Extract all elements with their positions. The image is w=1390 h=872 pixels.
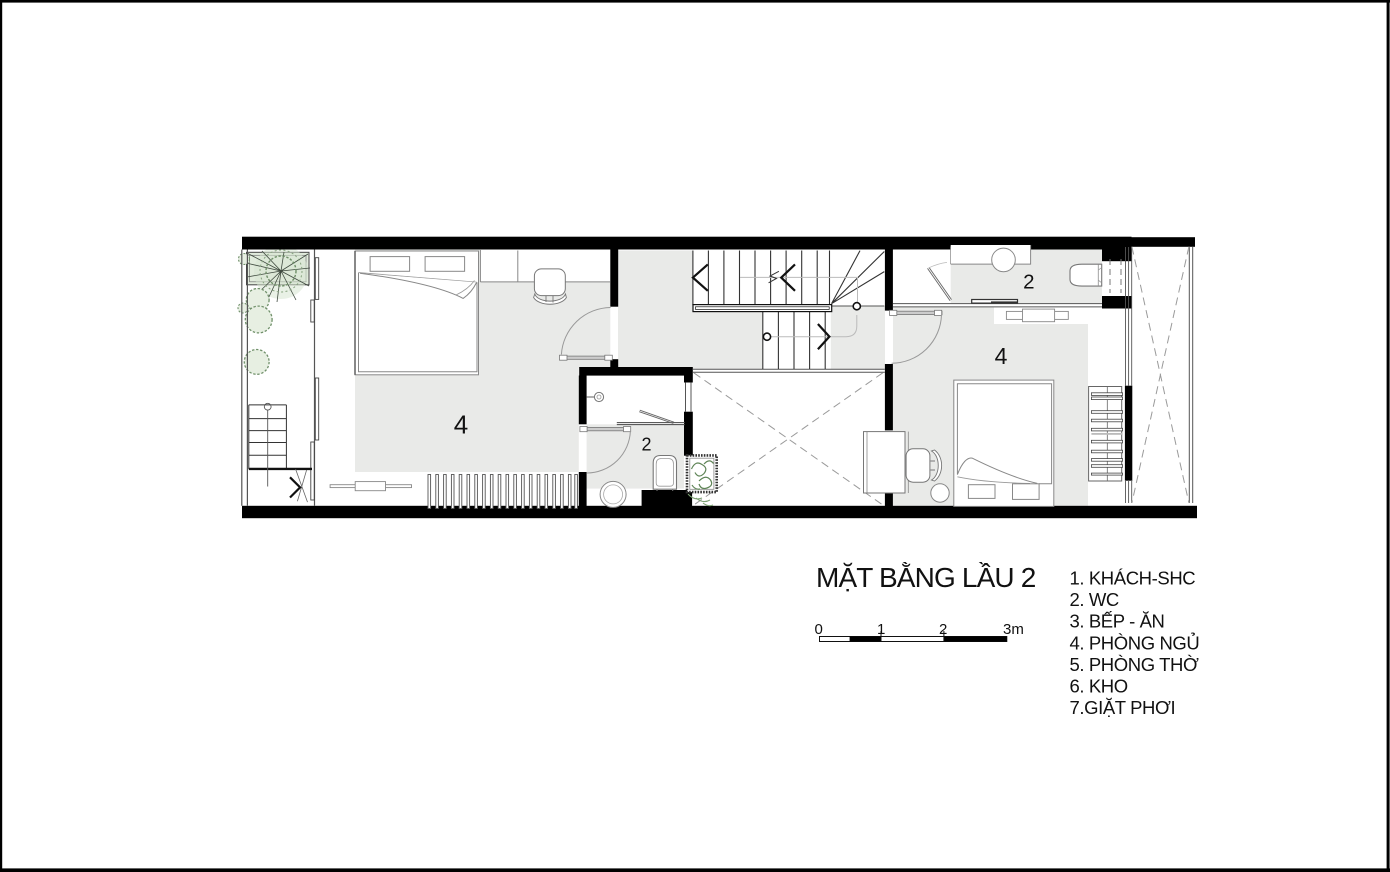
svg-text:2: 2 <box>1023 271 1034 294</box>
svg-text:3m: 3m <box>1003 621 1024 638</box>
svg-text:1: 1 <box>877 621 885 638</box>
svg-text:2: 2 <box>641 435 651 455</box>
svg-text:1. KHÁCH-SHC 2. WC 3. BẾP - ĂN: 1. KHÁCH-SHC 2. WC 3. BẾP - ĂN 4. PHÒNG … <box>1070 568 1205 719</box>
svg-text:0: 0 <box>815 621 823 638</box>
svg-text:MẶT BẰNG LẦU 2: MẶT BẰNG LẦU 2 <box>816 562 1036 593</box>
svg-text:2: 2 <box>939 621 947 638</box>
svg-text:4: 4 <box>995 343 1008 369</box>
svg-text:4: 4 <box>454 410 468 440</box>
